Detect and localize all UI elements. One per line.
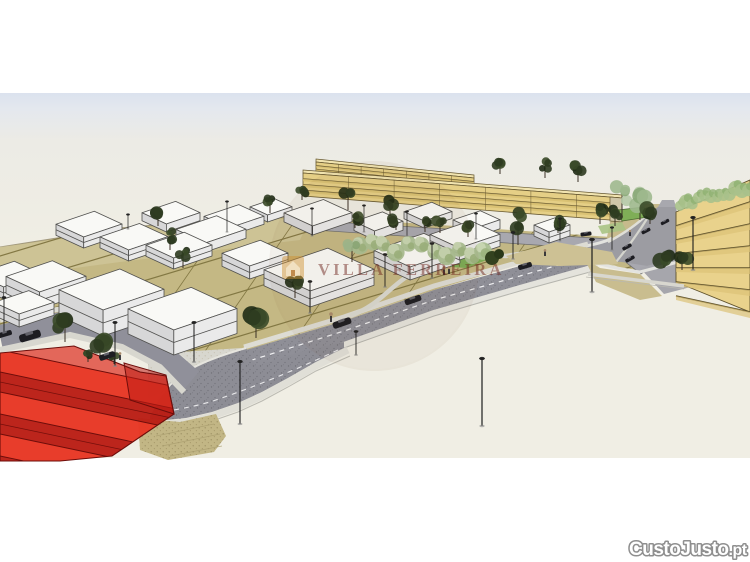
svg-text:VILLA FERREIRA: VILLA FERREIRA: [318, 260, 504, 279]
svg-text:CustoJusto.pt: CustoJusto.pt: [629, 539, 748, 560]
